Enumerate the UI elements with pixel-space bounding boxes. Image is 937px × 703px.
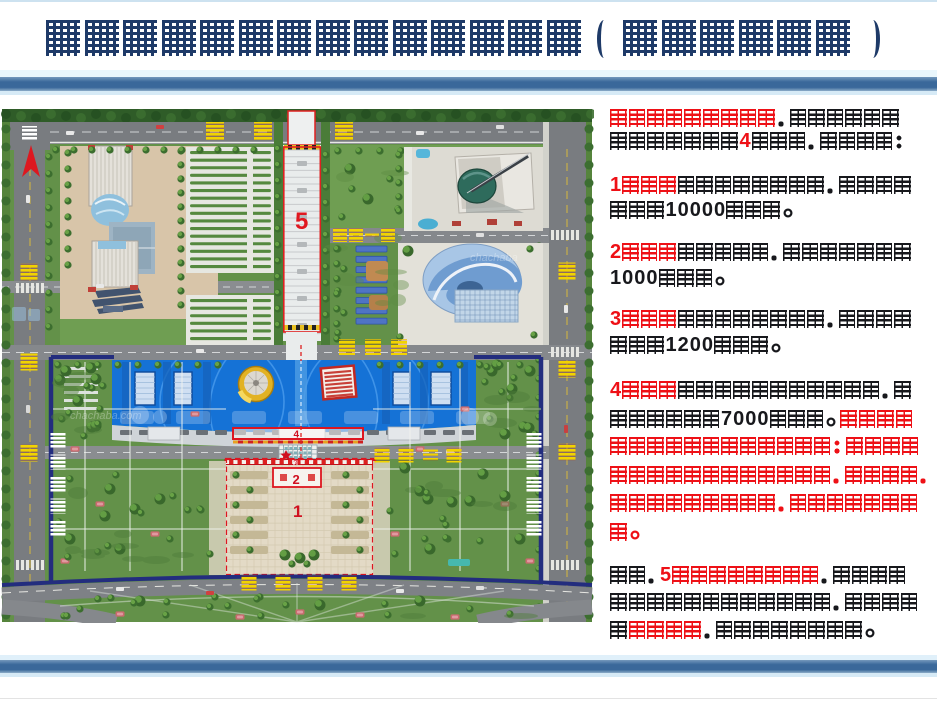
svg-text:4: 4 (294, 430, 300, 441)
svg-text:chachaba: chachaba (470, 252, 518, 264)
svg-text:2: 2 (293, 472, 300, 487)
svg-text:5: 5 (295, 208, 308, 235)
svg-text:chachaba.com: chachaba.com (70, 410, 142, 422)
svg-text:1: 1 (293, 502, 302, 521)
